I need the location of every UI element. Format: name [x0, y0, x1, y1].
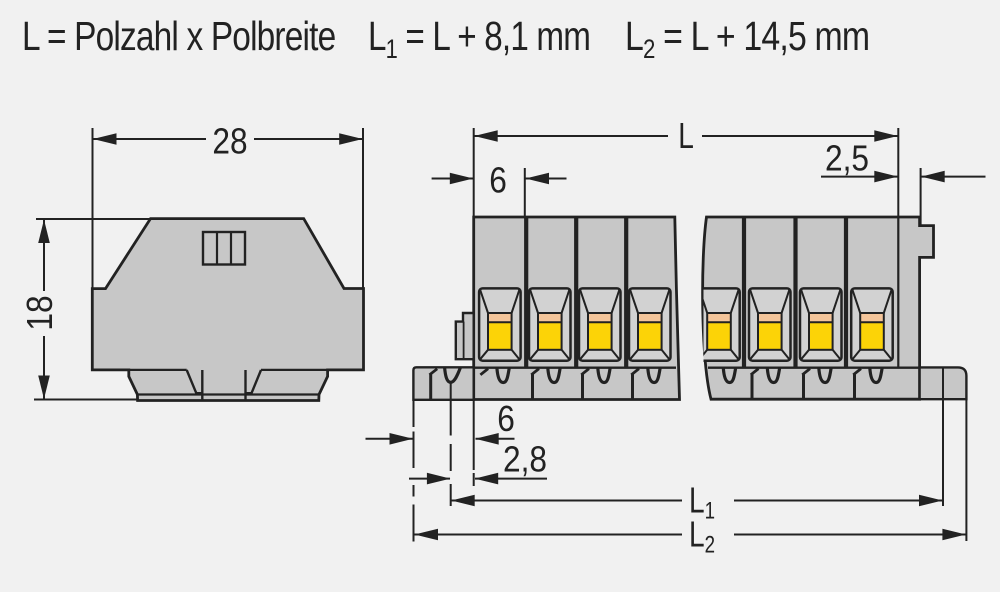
svg-text:L1 = L + 8,1 mm: L1 = L + 8,1 mm: [368, 13, 590, 65]
svg-text:18: 18: [20, 295, 60, 330]
svg-text:L2 = L + 14,5 mm: L2 = L + 14,5 mm: [625, 13, 869, 65]
svg-text:6: 6: [489, 161, 507, 201]
svg-text:28: 28: [212, 122, 247, 162]
svg-text:L: L: [678, 116, 694, 156]
svg-text:L = Polzahl x Polbreite: L = Polzahl x Polbreite: [22, 13, 335, 59]
svg-text:2,8: 2,8: [503, 440, 547, 480]
svg-text:2,5: 2,5: [825, 139, 869, 179]
svg-text:6: 6: [497, 399, 515, 439]
